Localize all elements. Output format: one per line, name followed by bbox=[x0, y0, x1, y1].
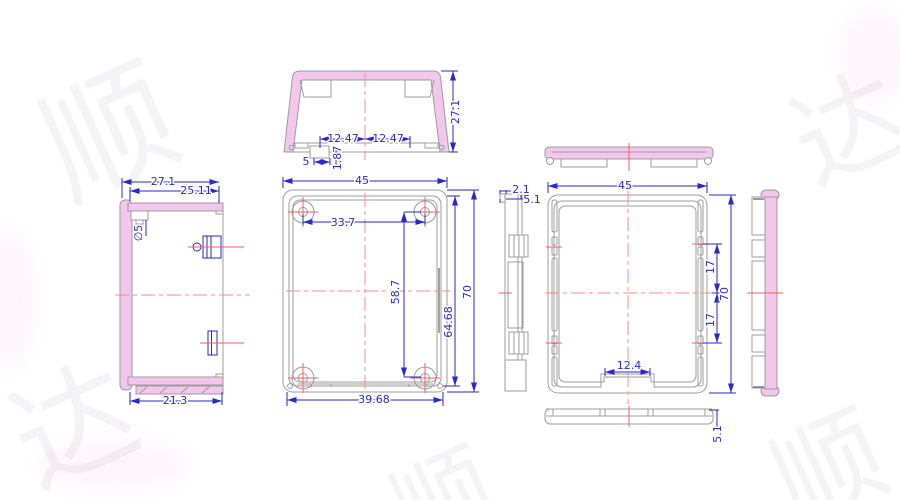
dim-text: 58.7 bbox=[389, 280, 402, 305]
section-foot bbox=[505, 360, 526, 391]
boss-side bbox=[131, 211, 148, 220]
bottom-bar bbox=[136, 386, 223, 394]
top-view-cavity bbox=[293, 80, 440, 152]
dim-text: 5 bbox=[303, 155, 310, 168]
drawing-canvas: 顺 达 达 顺 顺 12.47 12.47 5 bbox=[0, 0, 900, 500]
lid-bottom-view: 5.1 bbox=[545, 406, 724, 443]
lid-top-view bbox=[545, 143, 713, 171]
back-view: 45 17 70 17 12.4 bbox=[545, 179, 736, 404]
lid-tab bbox=[651, 159, 697, 167]
front-view: 45 33.7 58.7 64.68 70 39.68 bbox=[283, 174, 479, 406]
top-view: 12.47 12.47 5 1.87 27.1 bbox=[284, 71, 462, 170]
dim-text: 21.3 bbox=[163, 394, 188, 407]
dim-text: 39.68 bbox=[358, 393, 390, 406]
lid-rib bbox=[752, 240, 765, 257]
dim-text: 45 bbox=[618, 179, 632, 192]
section-lip bbox=[500, 194, 505, 202]
cad-drawing: 12.47 12.47 5 1.87 27.1 bbox=[0, 0, 900, 500]
dim-text: 27.1 bbox=[449, 100, 462, 125]
dim-text: 70 bbox=[461, 285, 474, 299]
lid-side-view bbox=[747, 190, 783, 396]
dim-text: 64.68 bbox=[442, 306, 455, 338]
side-section-view: 2.1 5.1 bbox=[499, 183, 541, 391]
left-view: 27.1 25.11 ∅5 21.3 bbox=[115, 175, 250, 407]
end-hook bbox=[547, 158, 554, 165]
dim-text: 25.11 bbox=[180, 184, 212, 197]
dim-text: 5.1 bbox=[523, 193, 541, 206]
lid-rib bbox=[752, 335, 765, 352]
dim-text: 1.87 bbox=[331, 146, 344, 171]
lid-rib bbox=[752, 356, 765, 388]
dim-text: 27.1 bbox=[151, 175, 176, 188]
top-flange bbox=[128, 203, 223, 211]
end-hook bbox=[705, 158, 712, 165]
bottom-flange bbox=[128, 377, 223, 385]
dim-text: 5.1 bbox=[711, 425, 724, 443]
dim-text: ∅5 bbox=[132, 225, 145, 242]
dim-text: 33.7 bbox=[331, 216, 356, 229]
dim-text: 70 bbox=[718, 287, 731, 301]
lid-tab bbox=[561, 159, 607, 167]
dim-text: 45 bbox=[355, 174, 369, 187]
dim-text: 17 bbox=[704, 313, 717, 327]
dim-text: 12.4 bbox=[617, 359, 642, 372]
dim-text: 12.47 bbox=[327, 132, 359, 145]
dim-text: 17 bbox=[704, 260, 717, 274]
dim-text: 12.47 bbox=[372, 132, 404, 145]
lid-rib bbox=[752, 261, 765, 330]
lid-rib bbox=[752, 197, 765, 235]
boss-stem bbox=[136, 220, 143, 224]
